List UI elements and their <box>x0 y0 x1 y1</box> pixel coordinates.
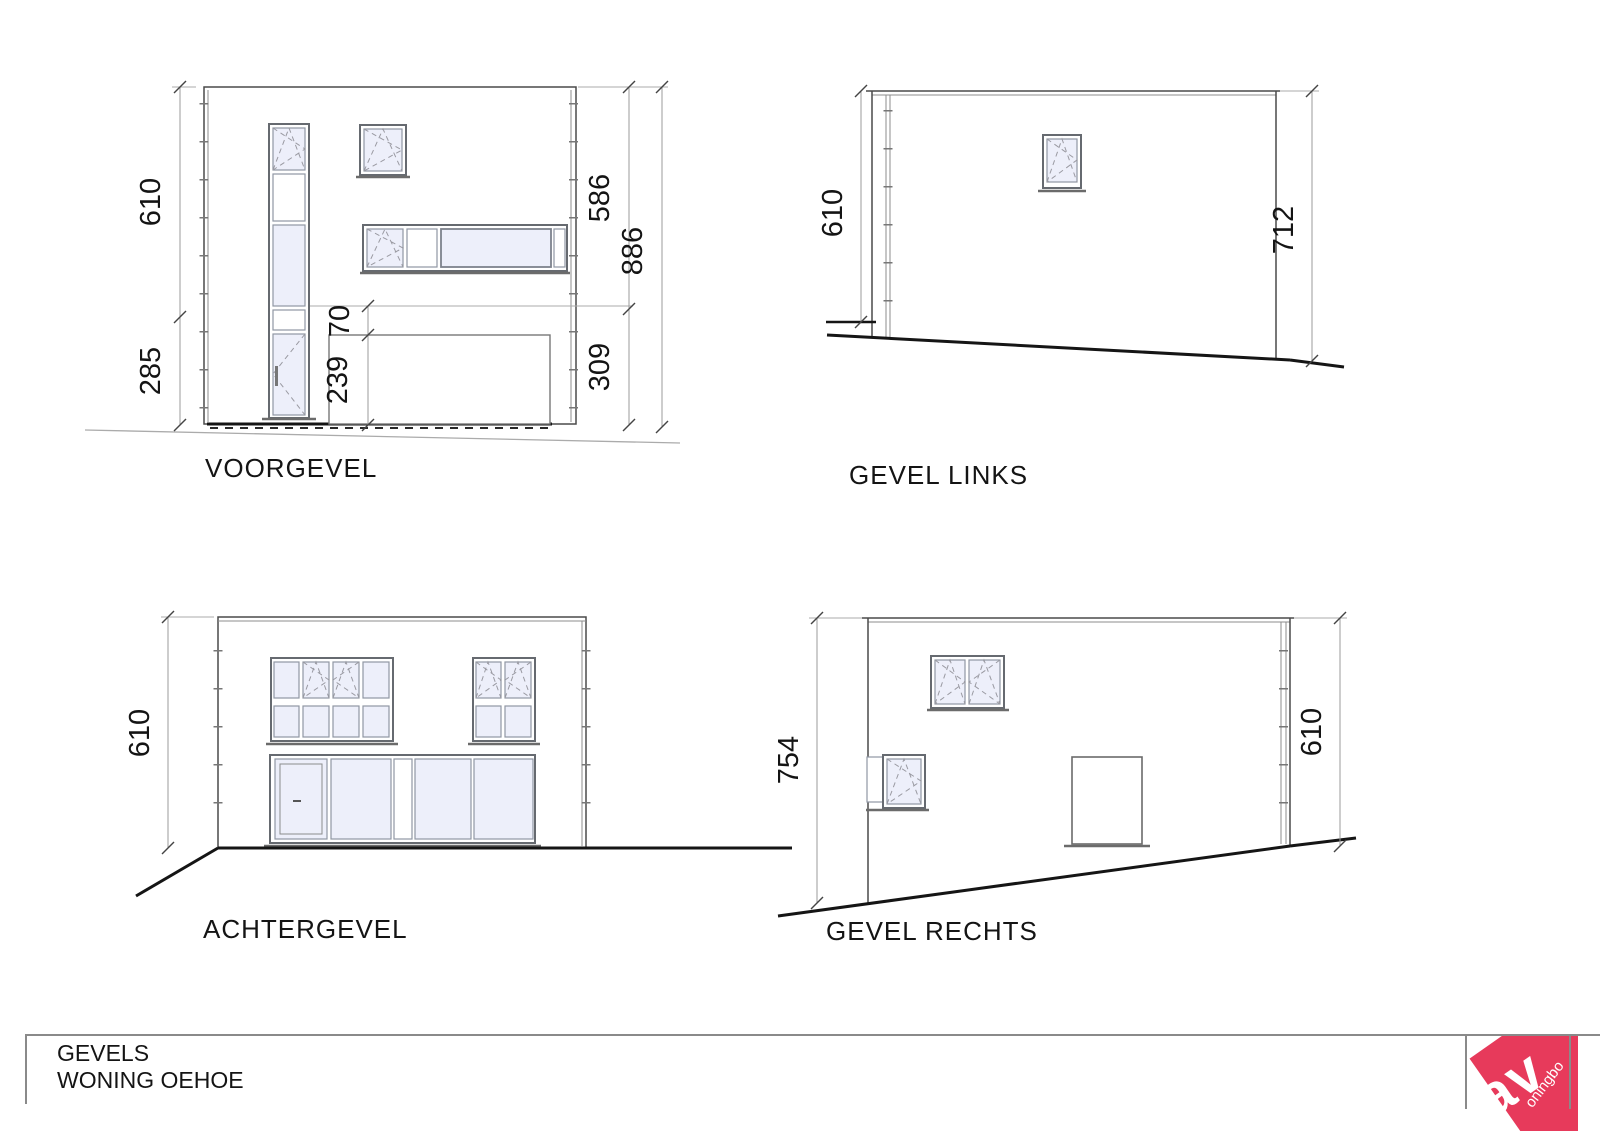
elevations-canvas: 610 285 586 309 886 70 239 VOORGEVEL <box>0 0 1600 1131</box>
voorgevel-dims-right: 586 309 886 <box>578 81 668 433</box>
voorgevel-window-band <box>360 225 570 273</box>
door-handle-icon <box>275 366 278 386</box>
rechts-upper-window <box>927 656 1009 710</box>
voorgevel-window-strip <box>262 124 316 419</box>
achtergevel-drawing: 610 ACHTERGEVEL <box>124 611 792 944</box>
voorgevel-dims-left: 610 285 <box>135 81 196 431</box>
gevel-rechts-drawing: 754 610 GEVEL RECHTS <box>773 612 1356 946</box>
achtergevel-back-door <box>275 759 327 839</box>
dim-achtergevel-left: 610 <box>124 709 156 757</box>
links-window <box>1038 135 1086 191</box>
dim-voorgevel-left-upper: 610 <box>135 178 167 226</box>
dim-voorgevel-left-lower: 285 <box>135 347 167 395</box>
dim-voorgevel-right-lower: 309 <box>584 343 616 391</box>
titleblock-project-name: WONING OEHOE <box>57 1067 244 1094</box>
achtergevel-window-right <box>468 658 540 744</box>
voorgevel-strip-window <box>273 128 305 170</box>
voorgevel-terrain-line <box>85 430 680 443</box>
drawing-sheet: 610 285 586 309 886 70 239 VOORGEVEL <box>0 0 1600 1131</box>
gevel-links-drawing: 610 712 GEVEL LINKS <box>817 85 1344 490</box>
dim-rechts-right: 610 <box>1296 708 1328 756</box>
rechts-dims: 754 610 <box>773 612 1347 909</box>
logo-cell-left-line <box>1465 1034 1467 1109</box>
voorgevel-title: VOORGEVEL <box>205 453 377 483</box>
links-dims: 610 712 <box>817 85 1319 367</box>
dim-voorgevel-garage-height: 239 <box>322 356 354 404</box>
company-logo: av oningbo <box>1466 1036 1578 1131</box>
rechts-door-opening <box>1064 757 1150 846</box>
achtergevel-title: ACHTERGEVEL <box>203 914 408 944</box>
titleblock-drawing-name: GEVELS <box>57 1040 149 1067</box>
achtergevel-dims: 610 <box>124 611 214 854</box>
rechts-terrain-line <box>778 846 1290 916</box>
rechts-small-window <box>866 755 929 810</box>
voorgevel-drawing: 610 285 586 309 886 70 239 VOORGEVEL <box>85 81 680 483</box>
voorgevel-top-window <box>356 125 410 177</box>
gevel-links-title: GEVEL LINKS <box>849 460 1028 490</box>
logo-cell-right-line <box>1569 1034 1571 1109</box>
titleblock-rule <box>25 1034 1600 1036</box>
voorgevel-garage-door <box>329 335 550 424</box>
dim-voorgevel-garage-offset: 70 <box>324 305 356 337</box>
dim-voorgevel-right-upper: 586 <box>584 174 616 222</box>
titleblock-left-line <box>25 1034 27 1104</box>
achtergevel-ground-glazing <box>264 755 541 846</box>
links-terrain-line <box>827 335 1290 360</box>
gevel-rechts-title: GEVEL RECHTS <box>826 916 1038 946</box>
achtergevel-window-left <box>266 658 398 744</box>
dim-voorgevel-right-total: 886 <box>617 227 649 275</box>
dim-links-left: 610 <box>817 189 849 237</box>
dim-links-right: 712 <box>1268 206 1300 254</box>
dim-rechts-left: 754 <box>773 736 805 784</box>
